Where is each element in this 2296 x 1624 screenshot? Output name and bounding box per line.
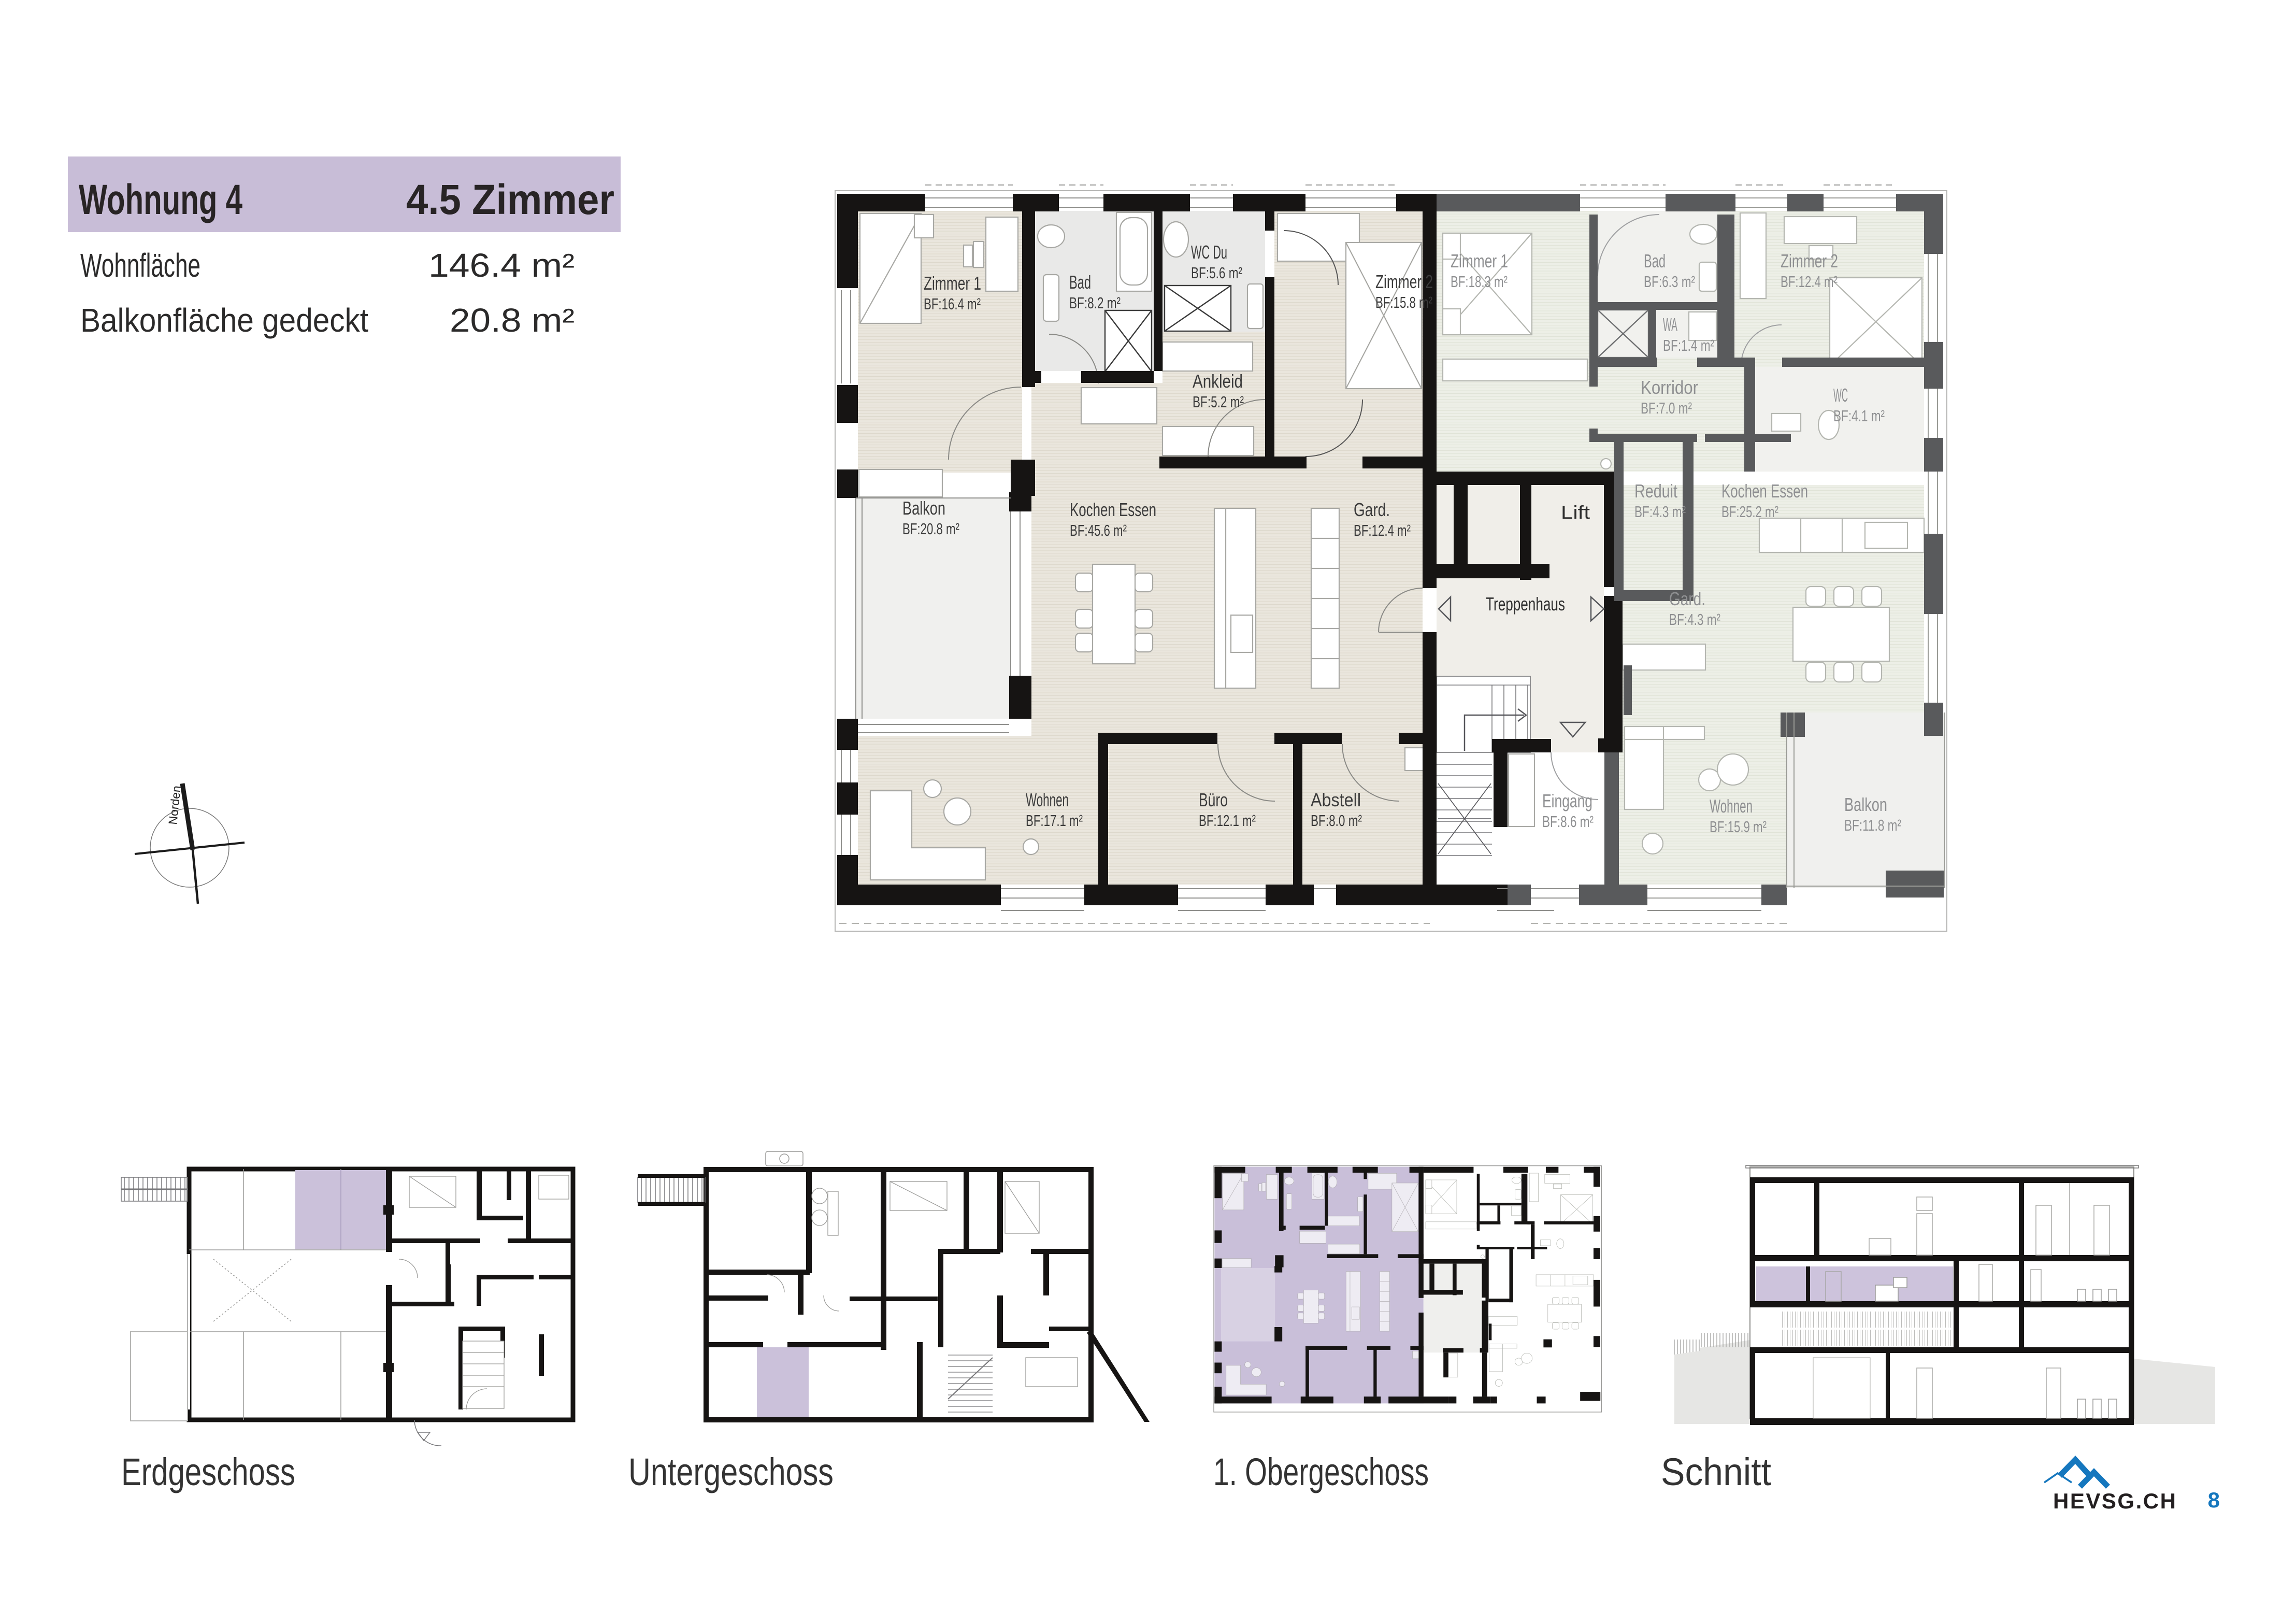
svg-text:Kochen Essen: Kochen Essen: [1721, 480, 1808, 502]
svg-text:WC: WC: [1833, 384, 1848, 406]
svg-text:BF:16.4 m²: BF:16.4 m²: [924, 295, 981, 313]
svg-text:Zimmer 1: Zimmer 1: [924, 273, 981, 294]
svg-text:Gard.: Gard.: [1354, 499, 1390, 520]
svg-text:Untergeschoss: Untergeschoss: [628, 1450, 834, 1493]
svg-text:4.5 Zimmer: 4.5 Zimmer: [406, 176, 614, 223]
svg-text:BF:5.2 m²: BF:5.2 m²: [1193, 393, 1244, 411]
svg-text:Erdgeschoss: Erdgeschoss: [121, 1450, 295, 1493]
svg-text:BF:6.3 m²: BF:6.3 m²: [1644, 273, 1695, 291]
svg-text:Abstell: Abstell: [1311, 789, 1361, 810]
svg-text:BF:25.2 m²: BF:25.2 m²: [1721, 503, 1778, 521]
svg-text:BF:12.4 m²: BF:12.4 m²: [1781, 273, 1838, 291]
svg-text:Wohnen: Wohnen: [1710, 795, 1753, 817]
svg-text:BF:8.6 m²: BF:8.6 m²: [1542, 813, 1594, 831]
svg-text:Bad: Bad: [1069, 272, 1091, 293]
svg-text:Zimmer 2: Zimmer 2: [1781, 250, 1838, 272]
svg-text:BF:20.8 m²: BF:20.8 m²: [902, 520, 959, 538]
svg-text:Ankleid: Ankleid: [1193, 371, 1243, 392]
svg-text:Wohnung 4: Wohnung 4: [79, 176, 242, 223]
svg-text:20.8 m²: 20.8 m²: [450, 302, 575, 339]
svg-text:Kochen Essen: Kochen Essen: [1070, 499, 1156, 520]
svg-text:Reduit: Reduit: [1634, 480, 1677, 502]
svg-text:Korridor: Korridor: [1641, 377, 1698, 398]
svg-text:Eingang: Eingang: [1542, 790, 1592, 811]
svg-text:Balkon: Balkon: [902, 497, 945, 519]
svg-text:Zimmer 1: Zimmer 1: [1451, 250, 1508, 272]
svg-text:BF:4.3 m²: BF:4.3 m²: [1634, 503, 1686, 521]
svg-text:BF:4.1 m²: BF:4.1 m²: [1833, 407, 1885, 425]
svg-text:8: 8: [2208, 1488, 2220, 1512]
svg-text:Treppenhaus: Treppenhaus: [1486, 593, 1565, 615]
svg-text:Balkonfläche gedeckt: Balkonfläche gedeckt: [80, 302, 368, 339]
svg-text:Bad: Bad: [1644, 250, 1666, 272]
svg-text:1. Obergeschoss: 1. Obergeschoss: [1213, 1450, 1429, 1493]
svg-text:BF:8.2 m²: BF:8.2 m²: [1069, 294, 1121, 312]
svg-text:BF:12.4 m²: BF:12.4 m²: [1354, 521, 1411, 539]
svg-text:BF:11.8 m²: BF:11.8 m²: [1844, 816, 1901, 834]
svg-text:WA: WA: [1663, 314, 1677, 335]
svg-text:BF:5.6 m²: BF:5.6 m²: [1191, 264, 1242, 282]
svg-text:BF:7.0 m²: BF:7.0 m²: [1641, 399, 1692, 417]
svg-text:BF:17.1 m²: BF:17.1 m²: [1026, 811, 1083, 830]
svg-text:Balkon: Balkon: [1844, 794, 1887, 815]
svg-text:Zimmer 2: Zimmer 2: [1375, 271, 1433, 292]
svg-text:Lift: Lift: [1561, 502, 1590, 523]
svg-text:BF:18.3 m²: BF:18.3 m²: [1451, 273, 1508, 291]
svg-text:BF:4.3 m²: BF:4.3 m²: [1669, 610, 1720, 629]
svg-text:Büro: Büro: [1199, 789, 1228, 810]
svg-text:146.4 m²: 146.4 m²: [428, 247, 575, 284]
svg-text:Schnitt: Schnitt: [1661, 1450, 1771, 1493]
svg-text:BF:12.1 m²: BF:12.1 m²: [1199, 811, 1256, 830]
svg-text:Gard.: Gard.: [1669, 588, 1705, 609]
svg-text:BF:15.9 m²: BF:15.9 m²: [1710, 818, 1767, 836]
svg-text:HEVSG.CH: HEVSG.CH: [2053, 1489, 2180, 1513]
svg-text:Wohnen: Wohnen: [1026, 789, 1069, 810]
svg-text:BF:1.4 m²: BF:1.4 m²: [1663, 336, 1714, 354]
svg-text:WC Du: WC Du: [1191, 241, 1227, 263]
svg-text:BF:15.8 m²: BF:15.8 m²: [1375, 293, 1432, 311]
svg-text:BF:45.6 m²: BF:45.6 m²: [1070, 521, 1127, 539]
svg-text:Wohnfläche: Wohnfläche: [80, 247, 200, 284]
svg-text:BF:8.0 m²: BF:8.0 m²: [1311, 811, 1362, 830]
